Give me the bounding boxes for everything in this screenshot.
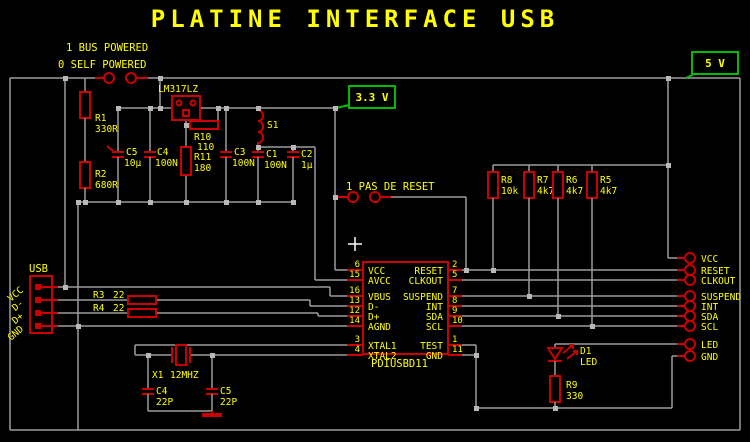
- wire-segment: [256, 200, 261, 205]
- resistor-r8[interactable]: R8 10k: [488, 165, 518, 270]
- ic-pin-label: SCL: [426, 322, 443, 333]
- usb-name: USB: [29, 263, 48, 275]
- c2-value: 1µ: [301, 160, 313, 171]
- resistor-r3[interactable]: R3 22: [93, 290, 156, 304]
- ic-pin-num: 14: [349, 316, 360, 326]
- r5-value: 4k7: [600, 186, 617, 197]
- wire-segment: [80, 162, 90, 188]
- wire-segment: [35, 310, 41, 316]
- ic-pin-label: CLKOUT: [409, 276, 444, 287]
- usb-connector[interactable]: USB VCC D- D+ GND: [6, 263, 58, 343]
- power-jumper-pin-1[interactable]: [104, 73, 114, 83]
- wire-segment: [553, 172, 563, 198]
- wire-segment: [491, 268, 496, 273]
- wire-segment: [191, 101, 196, 106]
- wire-segment: [146, 353, 151, 358]
- x1-ref: X1: [152, 370, 164, 381]
- crystal-wires: [135, 345, 347, 355]
- resistor-r7[interactable]: R7 4k7: [524, 165, 554, 296]
- wire-segment: [256, 106, 261, 111]
- wire-segment: [488, 172, 498, 198]
- c3-value: 100N: [232, 158, 255, 169]
- frame-and-rails: [10, 78, 740, 430]
- ic-pin-num: 1: [452, 335, 457, 345]
- c4-bottom-value: 22P: [156, 397, 173, 408]
- r11-ref: R11: [194, 152, 211, 163]
- capacitor-c2[interactable]: C2 1µ: [287, 147, 313, 202]
- ic-pdiusbd11[interactable]: PDIUSBD11 6 15 16 13 12 14 3 4 2 5 7 8 9…: [347, 260, 463, 370]
- wire-segment: [128, 296, 156, 304]
- reset-jumper[interactable]: 1 PAS DE RESET: [337, 181, 466, 270]
- resistor-r10[interactable]: R10 110: [190, 121, 218, 153]
- wire-segment: [128, 309, 156, 317]
- power-jumper-line1: 1 BUS POWERED: [66, 42, 148, 54]
- ic-pin-num: 2: [452, 260, 457, 270]
- c1-ref: C1: [266, 149, 278, 160]
- reset-jumper-pin-2[interactable]: [370, 192, 380, 202]
- wire-segment: [83, 200, 88, 205]
- capacitor-c1[interactable]: C1 100N: [252, 147, 287, 202]
- wire-segment: [224, 200, 229, 205]
- wire-segment: [184, 200, 189, 205]
- r6-ref: R6: [566, 175, 578, 186]
- wire-segment: [563, 345, 573, 353]
- crystal-x1[interactable]: X1 12MHZ: [152, 345, 199, 381]
- ic-pin-label: AGND: [368, 322, 391, 333]
- pad-clkout[interactable]: [685, 275, 695, 285]
- wire-segment: [216, 106, 221, 111]
- x1-value: 12MHZ: [170, 370, 199, 381]
- capacitor-c4-top[interactable]: C4 100N: [144, 108, 178, 202]
- r7-value: 4k7: [537, 186, 554, 197]
- wire-segment: [548, 348, 562, 359]
- pad-led[interactable]: [685, 339, 695, 349]
- ic-pin-label: XTAL2: [368, 351, 397, 362]
- wire-segment: [256, 145, 261, 150]
- wire-segment: [158, 76, 163, 81]
- wire-segment: [35, 323, 41, 329]
- page-title: PLATINE INTERFACE USB: [151, 5, 559, 33]
- wire-segment: [177, 101, 182, 106]
- regulator-lm317[interactable]: LM317LZ: [158, 84, 200, 120]
- c1-value: 100N: [264, 160, 287, 171]
- wire-segment: [666, 163, 671, 168]
- wire-segment: [464, 268, 469, 273]
- pad-int[interactable]: [685, 301, 695, 311]
- output-pads: VCC RESET CLKOUT SUSPEND INT SDA SCL LED…: [677, 253, 741, 363]
- reset-jumper-label: 1 PAS DE RESET: [346, 181, 435, 193]
- ic-pin-num: 4: [355, 345, 360, 355]
- power-jumper-pin-2[interactable]: [126, 73, 136, 83]
- resistor-r5[interactable]: R5 4k7: [587, 165, 617, 326]
- wire-segment: [291, 200, 296, 205]
- ic-pin-num: 16: [349, 286, 360, 296]
- wire-segment: [181, 147, 191, 175]
- r3-ref: R3: [93, 290, 104, 301]
- pad-gnd[interactable]: [685, 351, 695, 361]
- c3-ref: C3: [234, 147, 245, 158]
- wire-segment: [116, 106, 121, 111]
- pad-label-led: LED: [701, 340, 718, 351]
- v5-text: 5 V: [705, 57, 725, 70]
- cursor-crosshair: [348, 237, 362, 251]
- wire-segment: [333, 195, 338, 200]
- v33-text: 3.3 V: [355, 91, 388, 104]
- r1-ref: R1: [95, 113, 107, 124]
- ic-pin-num: 9: [452, 306, 457, 316]
- c5-bottom-ref: C5: [220, 386, 231, 397]
- c4-top-value: 100N: [155, 158, 178, 169]
- r4-ref: R4: [93, 303, 105, 314]
- voltage-label-5v: 5 V: [686, 52, 738, 78]
- ic-pin-num: 5: [452, 270, 457, 280]
- r7-ref: R7: [537, 175, 548, 186]
- r8-ref: R8: [501, 175, 513, 186]
- ic-pin-label: AVCC: [368, 276, 391, 287]
- ic-pin-num: 12: [349, 306, 360, 316]
- wire-segment: [183, 110, 189, 116]
- wire-segment: [190, 121, 218, 129]
- c5-bottom-value: 22P: [220, 397, 237, 408]
- pad-label-scl: SCL: [701, 322, 718, 333]
- r2-value: 680R: [95, 180, 118, 191]
- pad-label-vcc: VCC: [701, 254, 718, 265]
- resistor-r6[interactable]: R6 4k7: [553, 165, 583, 316]
- wire-segment: [184, 123, 189, 128]
- resistor-r4[interactable]: R4 22: [93, 303, 156, 317]
- d1-ref: D1: [580, 346, 592, 357]
- ic-pin-num: 15: [349, 270, 360, 280]
- pad-sda[interactable]: [685, 311, 695, 321]
- wire-segment: [148, 200, 153, 205]
- wire-segment: [474, 353, 479, 358]
- ic-pin-num: 10: [452, 316, 463, 326]
- wire-segment: [116, 200, 121, 205]
- ic-pin-num: 7: [452, 286, 457, 296]
- reset-jumper-pin-1[interactable]: [348, 192, 358, 202]
- schematic-canvas: PLATINE INTERFACE USB 1 BUS POWERED 0 SE…: [0, 0, 750, 442]
- r9-ref: R9: [566, 380, 578, 391]
- c5-top-ref: C5: [126, 147, 137, 158]
- wire-segment: [666, 76, 671, 81]
- r3-value: 22: [113, 290, 124, 301]
- usb-pin-gnd: GND: [6, 324, 26, 344]
- right-net-wires: [462, 78, 677, 408]
- pad-suspend[interactable]: [685, 291, 695, 301]
- ic-pin-num: 8: [452, 296, 457, 306]
- wire-segment: [524, 172, 534, 198]
- wire-segment: [527, 294, 532, 299]
- r5-ref: R5: [600, 175, 611, 186]
- r8-value: 10k: [501, 186, 518, 197]
- c4-top-ref: C4: [157, 147, 169, 158]
- regulator-name: LM317LZ: [158, 84, 198, 95]
- c4-bottom-ref: C4: [156, 386, 168, 397]
- wire-segment: [333, 106, 338, 111]
- pad-label-clkout: CLKOUT: [701, 276, 736, 287]
- pad-scl[interactable]: [685, 321, 695, 331]
- r6-value: 4k7: [566, 186, 583, 197]
- wire-segment: [176, 345, 186, 365]
- ic-pin-num: 3: [355, 335, 360, 345]
- resistor-r9[interactable]: R9 330: [550, 361, 583, 408]
- ic-pin-label: GND: [426, 351, 443, 362]
- wire-segment: [258, 108, 263, 147]
- c5-top-value: 10µ: [124, 158, 141, 169]
- wire-segment: [553, 406, 558, 411]
- r11-value: 180: [194, 163, 211, 174]
- s1-ref: S1: [267, 120, 279, 131]
- wire-segment: [550, 376, 560, 402]
- wire-segment: [210, 353, 215, 358]
- ic-pin-num: 6: [355, 260, 360, 270]
- ic-pin-num: 13: [349, 296, 360, 306]
- wire-segment: [224, 106, 229, 111]
- r2-ref: R2: [95, 169, 106, 180]
- wire-segment: [158, 106, 163, 111]
- wire-segment: [291, 145, 296, 150]
- wire-segment: [587, 172, 597, 198]
- wire-segment: [76, 324, 81, 329]
- ground-symbol: [148, 411, 222, 415]
- ic-pin-num: 11: [452, 345, 463, 355]
- pad-vcc[interactable]: [685, 253, 695, 263]
- wire-segment: [35, 284, 41, 290]
- resistor-r11[interactable]: R11 180: [181, 147, 211, 175]
- wire-segment: [80, 92, 90, 118]
- capacitor-c3[interactable]: C3 100N: [220, 108, 255, 202]
- wire-segment: [567, 351, 577, 359]
- r4-value: 22: [113, 303, 124, 314]
- inductor-s1[interactable]: S1: [258, 108, 279, 147]
- wire-segment: [107, 146, 113, 151]
- r1-value: 330R: [95, 124, 118, 135]
- wire-segment: [556, 314, 561, 319]
- pad-reset[interactable]: [685, 265, 695, 275]
- capacitor-c5-bottom[interactable]: C5 22P: [206, 355, 237, 411]
- d1-value: LED: [580, 357, 597, 368]
- power-select-jumper[interactable]: 1 BUS POWERED 0 SELF POWERED: [58, 42, 148, 83]
- capacitor-c4-bottom[interactable]: C4 22P: [142, 355, 173, 411]
- wire-segment: [76, 200, 81, 205]
- schematic-drawing: PLATINE INTERFACE USB 1 BUS POWERED 0 SE…: [0, 0, 750, 442]
- wire-segment: [590, 324, 595, 329]
- wire-segment: [148, 106, 153, 111]
- voltage-label-3v3: 3.3 V: [336, 86, 395, 108]
- pad-label-gnd: GND: [701, 352, 718, 363]
- wire-segment: [474, 406, 479, 411]
- wire-segment: [63, 285, 68, 290]
- power-jumper-line2: 0 SELF POWERED: [58, 59, 147, 71]
- wire-segment: [63, 76, 68, 81]
- wire-segment: [35, 297, 41, 303]
- c2-ref: C2: [301, 149, 312, 160]
- r9-value: 330: [566, 391, 583, 402]
